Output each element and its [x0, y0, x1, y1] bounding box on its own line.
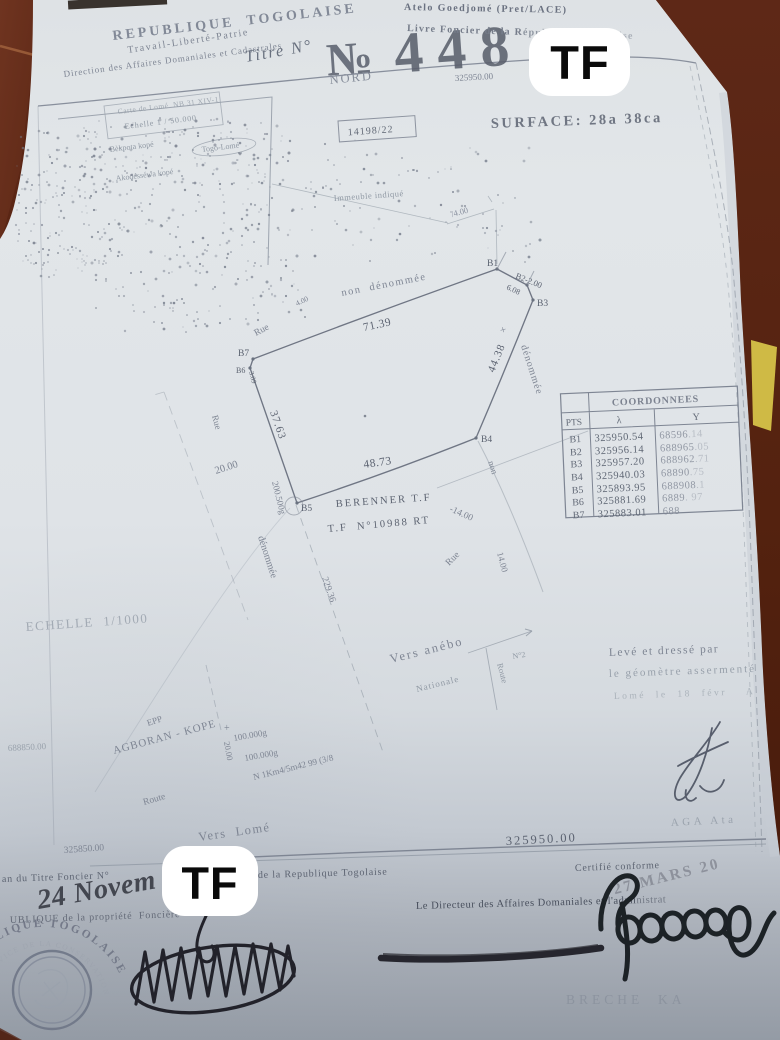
- svg-text:TF: TF: [182, 858, 239, 909]
- svg-text:B1: B1: [487, 259, 498, 269]
- svg-text:688965.05: 688965.05: [660, 441, 710, 454]
- svg-text:B4: B4: [571, 472, 583, 483]
- svg-text:68596.14: 68596.14: [659, 429, 703, 442]
- svg-text:B2: B2: [570, 447, 582, 458]
- svg-text:B6: B6: [572, 497, 584, 508]
- svg-text:688962.71: 688962.71: [660, 453, 710, 466]
- svg-text:B4: B4: [481, 435, 492, 445]
- svg-text:325940.03: 325940.03: [596, 469, 646, 482]
- svg-text:B6: B6: [236, 366, 245, 375]
- svg-text:TF: TF: [550, 36, 609, 89]
- svg-text:325881.69: 325881.69: [597, 494, 647, 507]
- svg-text:325893.95: 325893.95: [596, 482, 646, 495]
- svg-text:688850.00: 688850.00: [8, 741, 47, 753]
- svg-text:B7: B7: [573, 510, 585, 521]
- svg-text:68890.75: 68890.75: [661, 467, 705, 480]
- svg-text:B5: B5: [571, 485, 583, 496]
- svg-text:325950.00: 325950.00: [455, 71, 494, 83]
- svg-text:325956.14: 325956.14: [595, 444, 645, 457]
- svg-text:6889. 97: 6889. 97: [662, 492, 703, 505]
- svg-text:+: +: [224, 723, 230, 734]
- svg-text:B7: B7: [238, 349, 249, 359]
- svg-text:B1: B1: [569, 434, 581, 445]
- svg-text:PTS: PTS: [566, 418, 583, 429]
- svg-text:B3: B3: [570, 459, 582, 470]
- svg-text:325950.54: 325950.54: [594, 431, 644, 444]
- svg-text:325883.01: 325883.01: [598, 507, 648, 520]
- svg-text:BRECHE KA: BRECHE KA: [566, 992, 686, 1007]
- svg-text:B3: B3: [537, 299, 548, 309]
- svg-text:Y: Y: [692, 412, 700, 423]
- svg-text:325957.20: 325957.20: [595, 456, 645, 469]
- svg-text:λ: λ: [616, 415, 621, 426]
- svg-text:B5: B5: [301, 504, 312, 514]
- svg-text:688: 688: [662, 506, 680, 518]
- svg-text:688908.1: 688908.1: [661, 480, 705, 493]
